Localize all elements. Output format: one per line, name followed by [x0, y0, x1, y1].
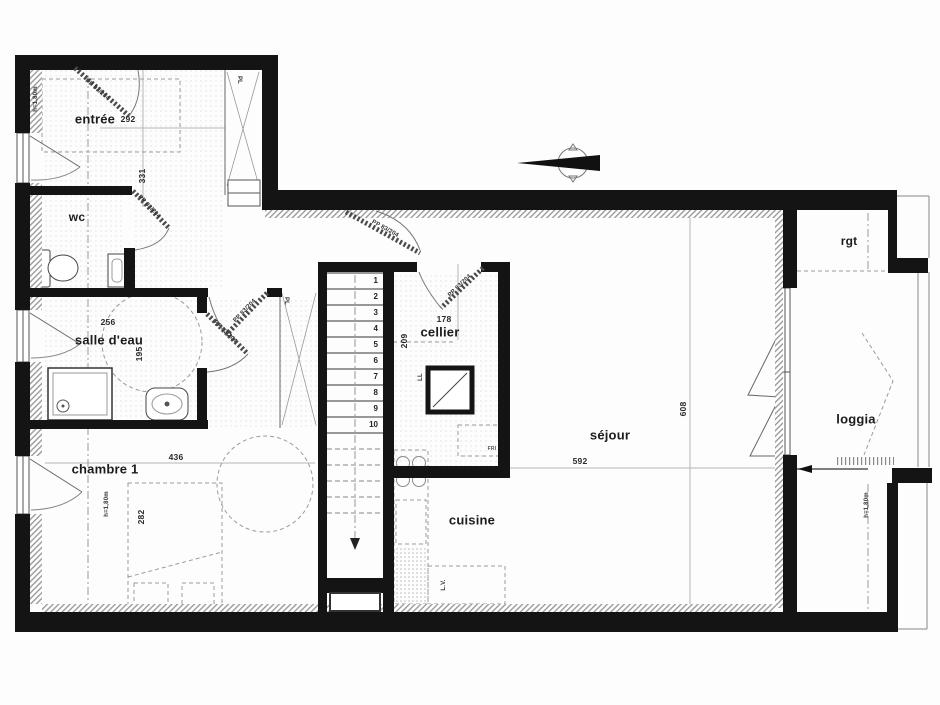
room-label-cuisine: cuisine	[449, 513, 495, 528]
stair-step-number: 9	[366, 404, 378, 414]
dishwasher-slot	[428, 566, 505, 604]
washing-machine-label: LL	[418, 373, 424, 381]
bay-window	[748, 288, 790, 456]
room-label-sejour: séjour	[590, 428, 630, 443]
dim-salle-deau-depth: 195	[134, 347, 144, 362]
window-height-label: h=1,80m	[104, 491, 110, 517]
toilet-bowl	[48, 255, 78, 281]
loggia-grille	[836, 457, 894, 465]
bed	[128, 483, 222, 608]
dim-sejour-depth: 608	[678, 402, 688, 417]
stair-direction-arrow	[350, 538, 360, 550]
window-height-label: h=1,80m	[864, 492, 870, 518]
stair-step-number: 2	[366, 292, 378, 302]
window-height-label: h=1,80m	[33, 86, 39, 112]
stair-step-number: 4	[366, 324, 378, 334]
sliding-pane-arrow	[750, 399, 779, 456]
dim-entree-depth: 331	[137, 169, 147, 184]
stair-step-number: 3	[366, 308, 378, 318]
room-label-cellier: cellier	[421, 325, 460, 340]
shower	[48, 368, 112, 420]
living-door-leaf	[346, 212, 420, 253]
floor-plan: entrée 292 331 wc salle d'eau 256 195 ch…	[0, 0, 940, 705]
stair-niche	[330, 593, 380, 611]
dim-cellier-width: 178	[437, 314, 452, 324]
room-label-salle-deau: salle d'eau	[75, 333, 143, 348]
dim-entree-width: 292	[121, 114, 136, 124]
stair-step-number: 7	[366, 372, 378, 382]
room-label-wc: wc	[69, 210, 85, 224]
room-label-loggia: loggia	[836, 412, 875, 427]
dim-sejour-width: 592	[573, 456, 588, 466]
sliding-pane-arrow	[748, 333, 779, 397]
dim-salle-deau-width: 256	[101, 317, 116, 327]
dim-chambre-depth: 282	[136, 510, 146, 525]
fridge-label: FRI	[488, 446, 497, 452]
room-label-rgt: rgt	[841, 234, 858, 248]
closet-label: PL	[283, 297, 289, 305]
stair-step-number: 8	[366, 388, 378, 398]
room-label-entree: entrée	[75, 112, 115, 127]
north-arrow	[517, 144, 600, 182]
stair-step-number: 5	[366, 340, 378, 350]
dishwasher-label: L.V.	[441, 579, 447, 590]
stair-step-number: 1	[366, 276, 378, 286]
dim-chambre-width: 436	[169, 452, 184, 462]
loggia-chevron	[862, 333, 893, 455]
room-label-chambre: chambre 1	[72, 462, 139, 477]
fridge-zone	[395, 548, 427, 602]
closet-label: PL	[236, 76, 242, 84]
threshold-arrow	[798, 465, 812, 473]
stair-step-number: 10	[366, 420, 378, 430]
dim-cellier-depth: 209	[399, 334, 409, 349]
stair-step-number: 6	[366, 356, 378, 366]
